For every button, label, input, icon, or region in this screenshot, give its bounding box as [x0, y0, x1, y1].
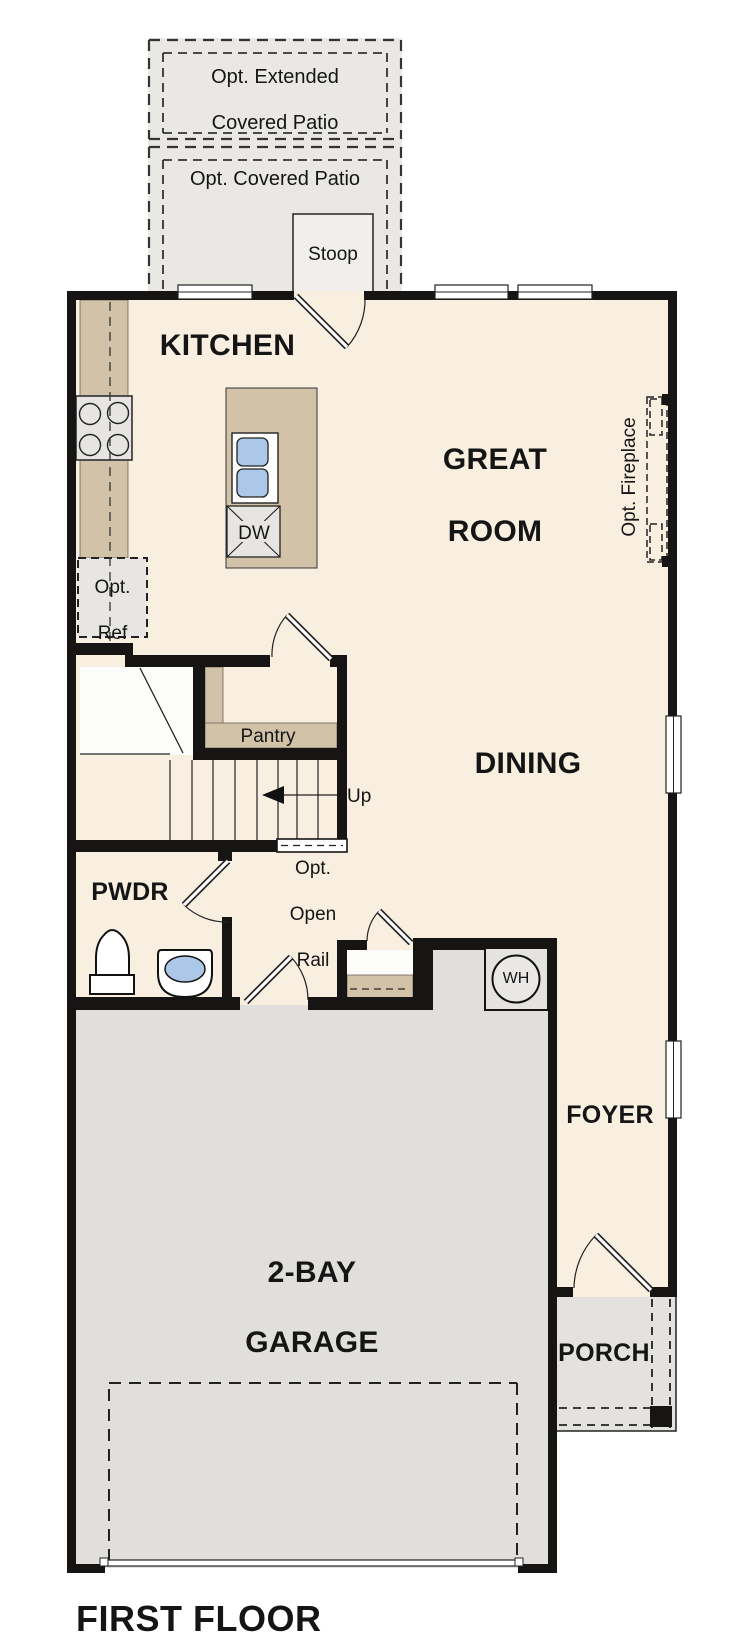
- patio-covered-label: Opt. Covered Patio: [148, 168, 402, 191]
- stoop-label: Stoop: [295, 243, 371, 266]
- kitchen-label: KITCHEN: [140, 328, 315, 364]
- powder-sink-icon: [158, 950, 212, 997]
- great-room-label: GREAT ROOM: [425, 442, 565, 550]
- floor-title: FIRST FLOOR: [76, 1598, 396, 1640]
- foyer-window: [666, 1041, 681, 1118]
- garage-label: 2-BAY GARAGE: [222, 1255, 402, 1360]
- fridge-label: Opt. Ref: [78, 576, 147, 645]
- sink-icon: [232, 433, 278, 503]
- foyer-label: FOYER: [560, 1101, 660, 1130]
- powder-room-label: PWDR: [80, 878, 180, 907]
- dining-label: DINING: [448, 746, 608, 782]
- fireplace-label: Opt. Fireplace: [618, 397, 638, 557]
- dining-window: [666, 716, 681, 793]
- patio-extended-label: Opt. Extended Covered Patio: [148, 66, 402, 135]
- up-label: Up: [347, 785, 391, 808]
- pantry-label: Pantry: [218, 725, 318, 748]
- kitchen-window: [178, 285, 252, 299]
- open-rail: [277, 839, 347, 852]
- stove-icon: [76, 396, 132, 460]
- dishwasher-label: DW: [229, 522, 279, 545]
- understair-closet: [80, 667, 193, 755]
- great-room-window-2: [518, 285, 592, 299]
- stoop-door-opening: [294, 291, 364, 300]
- floorplan-page: Opt. Extended Covered Patio Opt. Covered…: [0, 0, 741, 1641]
- water-heater-label: WH: [496, 970, 536, 988]
- porch-label: PORCH: [554, 1339, 654, 1368]
- open-rail-label: Opt. Open Rail: [263, 857, 363, 972]
- porch-post: [650, 1406, 672, 1427]
- great-room-window-1: [435, 285, 508, 299]
